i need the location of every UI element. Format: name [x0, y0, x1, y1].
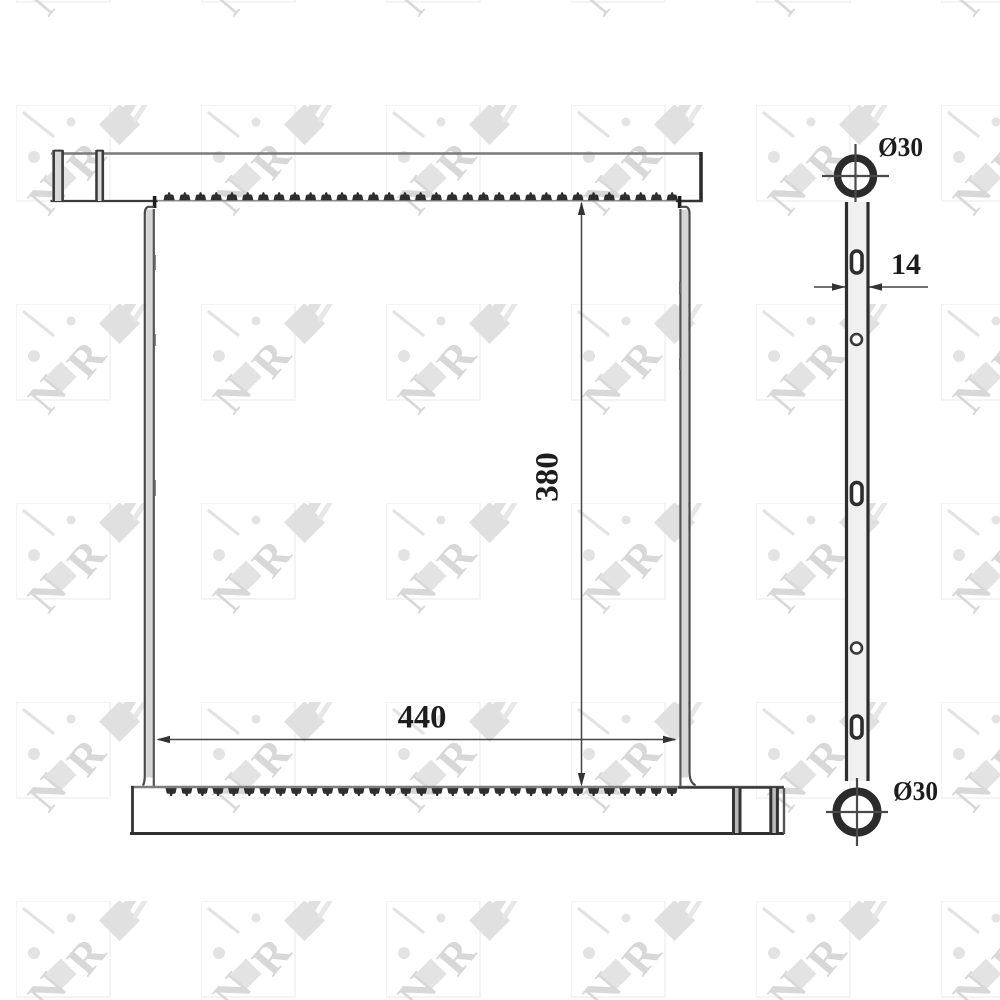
svg-text:Ø30: Ø30	[893, 776, 938, 806]
svg-text:Ø30: Ø30	[878, 132, 923, 162]
svg-text:440: 440	[398, 700, 447, 736]
svg-text:380: 380	[530, 452, 566, 502]
svg-text:14: 14	[891, 248, 921, 281]
